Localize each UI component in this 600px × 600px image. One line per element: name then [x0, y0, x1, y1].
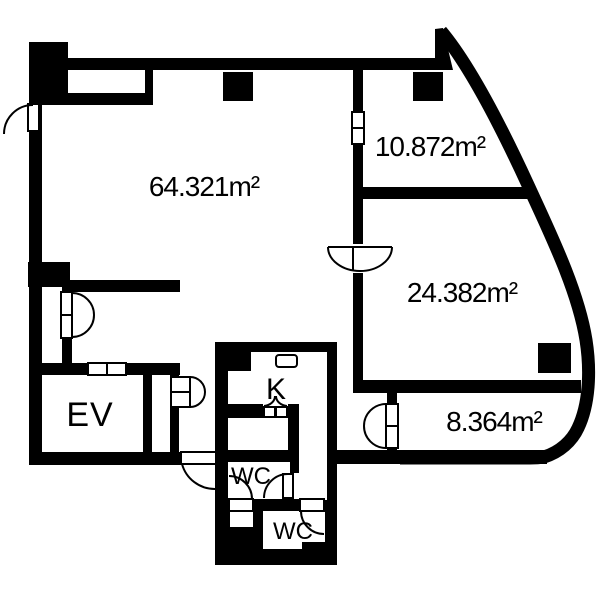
wall-center-vert: [353, 58, 363, 392]
kitchen-sink: [276, 355, 297, 367]
door-arc-shaft-top: [190, 377, 205, 392]
door-arc-closet-bottom: [72, 315, 94, 337]
pillar-middle-right-room: [538, 343, 571, 373]
window-ev-left: [88, 363, 107, 375]
door-arc-entrance: [182, 464, 215, 489]
door-leaf-wc-upper-a: [229, 499, 253, 511]
wall-divider-10-24: [363, 187, 528, 199]
wall-divider-24-8: [353, 380, 581, 393]
door-leaf-closet-bottom: [61, 315, 72, 338]
label-middle-right-room: 24.382m²: [407, 277, 518, 308]
window-bay-opening: [68, 70, 145, 93]
door-arc-shaft-bottom: [190, 392, 205, 407]
door-leaf-kitchen-right: [276, 407, 287, 417]
label-lower-right-room: 8.364m²: [446, 406, 542, 437]
corridor-interior: [299, 352, 327, 500]
wall-top: [68, 58, 440, 70]
label-kitchen: K: [266, 373, 286, 406]
door-leaf-shaft-top: [171, 377, 190, 392]
door-leaf-shaft-bottom: [171, 392, 190, 407]
window-center-wall-upper: [352, 112, 364, 128]
pillar-upper-right-room: [413, 72, 443, 101]
door-leaf-wc-lower: [300, 499, 324, 511]
door-leaf-room8-top: [386, 404, 398, 426]
door-leaf-kitchen-left: [264, 407, 275, 417]
door-leaf-entrance: [181, 452, 216, 464]
wall-hall-top: [62, 280, 180, 292]
door-arc-closet-top: [72, 293, 94, 315]
floor-plan: 64.321m² 10.872m² 24.382m² 8.364m² EV K …: [0, 0, 600, 600]
door-arc-room8-bottom: [364, 426, 386, 448]
window-ev-right: [107, 363, 126, 375]
door-leaf-wc-upper-b: [283, 474, 293, 498]
wall-ev-right: [143, 370, 152, 456]
label-elevator: EV: [66, 396, 113, 434]
label-main-room: 64.321m²: [149, 171, 260, 202]
door-leaf-exterior-left: [28, 104, 39, 131]
washroom-interior: [228, 418, 288, 450]
windows: [88, 112, 364, 375]
door-leaf-room8-bottom: [386, 426, 398, 448]
pillar-main-room: [223, 72, 253, 101]
label-upper-right-room: 10.872m²: [375, 131, 486, 162]
label-wc-upper: WC: [231, 463, 271, 490]
wc-door-pocket: [230, 511, 253, 527]
window-center-wall-lower: [352, 128, 364, 144]
door-arc-room8-top: [364, 404, 386, 426]
door-leaves: [28, 104, 398, 511]
door-leaf-closet-top: [61, 292, 72, 315]
floor-plan-svg: 64.321m² 10.872m² 24.382m² 8.364m² EV K …: [0, 0, 600, 600]
label-wc-lower: WC: [273, 518, 313, 545]
